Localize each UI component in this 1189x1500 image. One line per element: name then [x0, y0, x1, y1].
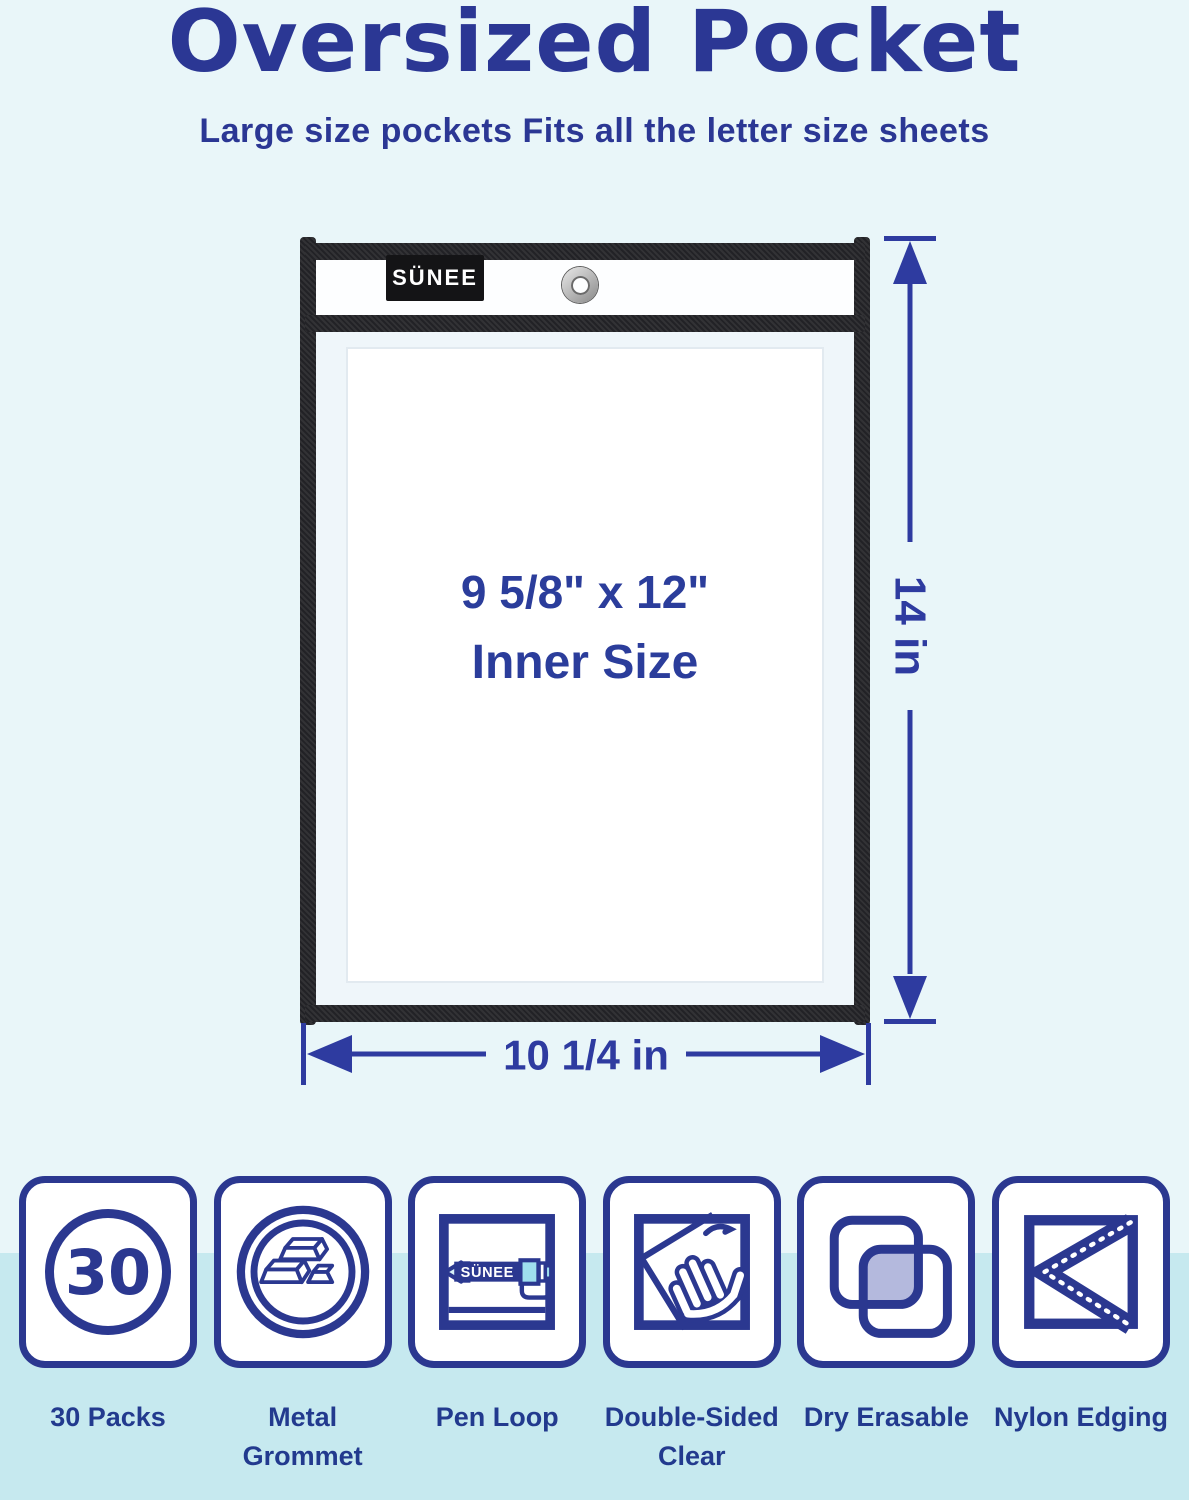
- height-dimension: 14 in: [878, 234, 942, 1026]
- ingots-glyph: [261, 1239, 332, 1282]
- grommet-hole: [571, 276, 590, 295]
- pen-loop-icon: SÜNEE: [428, 1203, 566, 1341]
- feature-label: Metal Grommet: [216, 1398, 390, 1476]
- feature-card: 30: [19, 1176, 197, 1368]
- pack-count-icon: 30: [45, 1209, 171, 1335]
- edging-band: [1044, 1222, 1130, 1326]
- page-title: Oversized Pocket: [0, 0, 1189, 92]
- feature-row: 30 30 Packs: [0, 1176, 1189, 1476]
- width-dimension-label: 10 1/4 in: [503, 1032, 669, 1079]
- feature-nylon-edging: Nylon Edging: [989, 1176, 1173, 1476]
- grommet: [562, 267, 598, 303]
- double-sided-clear-icon: [623, 1203, 761, 1341]
- nylon-edging-icon: [1012, 1203, 1150, 1341]
- motion-arc: [706, 1227, 731, 1234]
- feature-card: SÜNEE: [408, 1176, 586, 1368]
- feature-card: [214, 1176, 392, 1368]
- feature-30-packs: 30 30 Packs: [16, 1176, 200, 1476]
- arrow-up-icon: [893, 241, 927, 284]
- pocket-body: 9 5/8" x 12" Inner Size: [316, 332, 854, 1005]
- inner-sheet: 9 5/8" x 12" Inner Size: [346, 347, 824, 983]
- width-dimension: 10 1/4 in: [296, 1018, 876, 1090]
- feature-label: Pen Loop: [410, 1398, 584, 1437]
- feature-label: Nylon Edging: [994, 1398, 1168, 1437]
- pen-clip: [522, 1284, 550, 1298]
- nylon-edge-middle: [305, 315, 865, 332]
- feature-double-sided-clear: Double-Sided Clear: [600, 1176, 784, 1476]
- inner-size-text: 9 5/8" x 12" Inner Size: [461, 565, 709, 690]
- pocket-diagram: 9 5/8" x 12" Inner Size SÜNEE: [300, 237, 870, 1025]
- feature-label: Dry Erasable: [799, 1398, 973, 1437]
- feature-label: Double-Sided Clear: [605, 1398, 779, 1476]
- feature-metal-grommet: Metal Grommet: [211, 1176, 395, 1476]
- feature-pen-loop: SÜNEE Pen Loop: [405, 1176, 589, 1476]
- arrow-left-icon: [307, 1035, 352, 1073]
- arrow-right-icon: [820, 1035, 865, 1073]
- hand-icon: [670, 1248, 749, 1321]
- arrow-down-icon: [893, 976, 927, 1019]
- nylon-edge-left: [300, 237, 316, 1025]
- nylon-edge-right: [854, 237, 870, 1025]
- metal-grommet-icon: [234, 1203, 372, 1341]
- feature-dry-erasable: Dry Erasable: [794, 1176, 978, 1476]
- product-infographic: Oversized Pocket Large size pockets Fits…: [0, 0, 1189, 1500]
- feature-card: [603, 1176, 781, 1368]
- inner-size-caption: Inner Size: [461, 635, 709, 690]
- feature-label: 30 Packs: [21, 1398, 195, 1437]
- feature-card: [797, 1176, 975, 1368]
- feature-card: [992, 1176, 1170, 1368]
- inner-size-value: 9 5/8" x 12": [461, 565, 709, 619]
- height-dimension-label: 14 in: [886, 576, 935, 676]
- page-subtitle: Large size pockets Fits all the letter s…: [0, 112, 1189, 151]
- pen-brand-text: SÜNEE: [461, 1264, 514, 1281]
- brand-label: SÜNEE: [386, 255, 484, 301]
- dry-erasable-icon: [817, 1203, 955, 1341]
